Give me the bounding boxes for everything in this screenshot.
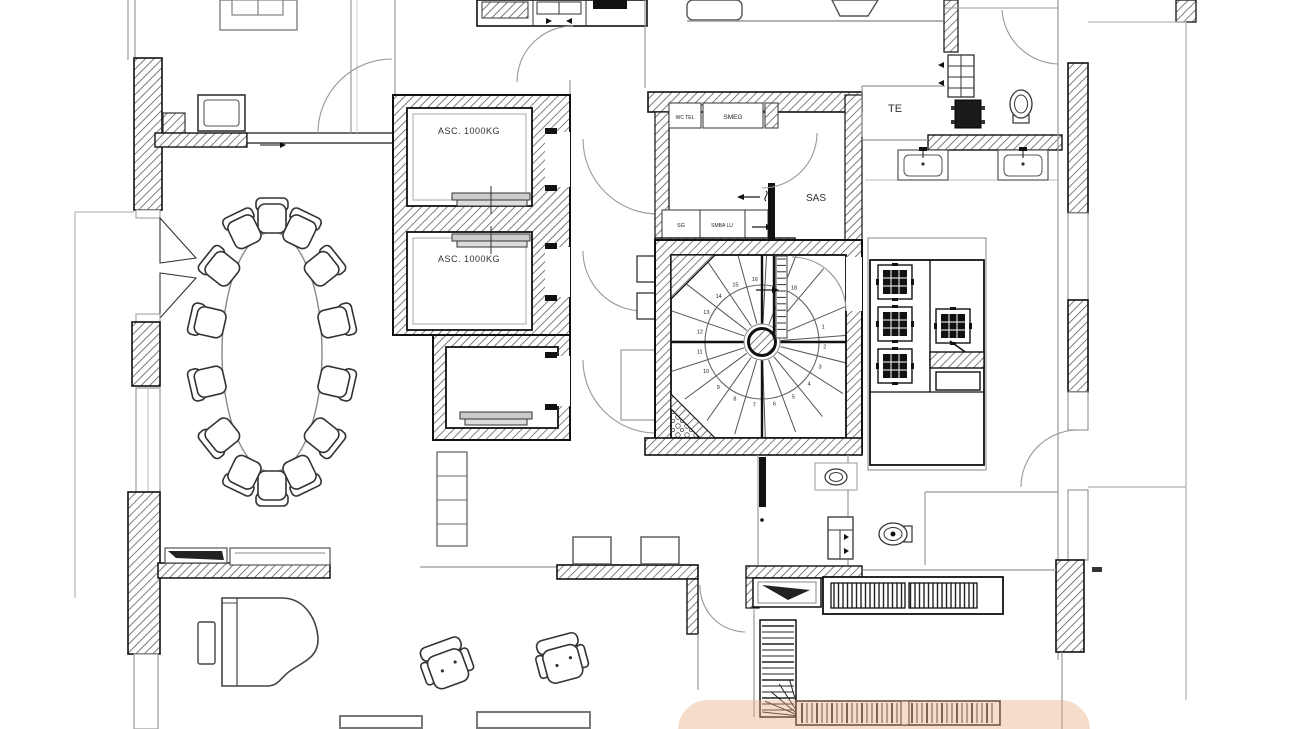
stair-step-number: 4 <box>808 382 811 388</box>
stair-step-number: 11 <box>697 350 703 356</box>
stool <box>641 537 679 564</box>
conference-chair <box>187 363 228 402</box>
door-arc <box>583 251 643 311</box>
sas-vestibule: WC TEL SMEG SAS SG SMBA LU <box>648 92 862 253</box>
cloakroom <box>746 566 1102 614</box>
conference-chair <box>316 363 357 402</box>
shower-unit <box>955 100 981 128</box>
highlight-overlay <box>678 700 1090 729</box>
elevator-cab-1 <box>407 108 532 206</box>
te-label: TE <box>888 103 902 115</box>
piano-bench <box>198 622 215 664</box>
conference-chair <box>187 302 228 341</box>
stair-step-number: 18 <box>791 286 797 292</box>
stair-step-number: 1 <box>822 325 825 331</box>
conference-area <box>187 198 358 506</box>
stair-step-number: 13 <box>703 310 709 316</box>
stove-burner <box>934 307 972 345</box>
low-table <box>340 716 422 728</box>
window <box>1068 490 1088 560</box>
top-right-lounge <box>687 0 943 21</box>
stair-step-number: 5 <box>792 394 795 400</box>
door-arc <box>1002 10 1058 64</box>
door-arc <box>700 585 745 632</box>
conference-chair <box>256 198 288 233</box>
low-table <box>477 712 590 728</box>
sg-label: SG <box>677 223 685 229</box>
floor-plan-canvas: ASC. 1000KG ASC. 1000KG WC TEL SMEG SAS … <box>0 0 1296 729</box>
shelf-stack <box>437 452 467 546</box>
sas-label: SAS <box>806 193 826 204</box>
wall <box>928 135 1062 150</box>
floor-plan-drawing: ASC. 1000KG ASC. 1000KG WC TEL SMEG SAS … <box>0 0 1296 729</box>
bench <box>687 0 742 20</box>
entry-arrow <box>737 194 744 200</box>
toilet <box>1010 90 1032 123</box>
counter-wall <box>687 579 698 634</box>
armchair <box>415 634 477 693</box>
stair-step-number: 15 <box>732 283 738 289</box>
stair-step-number: 8 <box>733 397 736 403</box>
door-arc <box>583 139 658 214</box>
elevator-2-label: ASC. 1000KG <box>438 254 500 264</box>
sanitary-rooms <box>645 438 1058 565</box>
stair-step-number: 16 <box>752 277 758 283</box>
smba-lu-label: SMBA LU <box>711 223 733 229</box>
wc-tel-label: WC TEL <box>676 115 695 121</box>
door-arc <box>318 59 392 133</box>
door-panel <box>768 183 775 239</box>
stove-burner <box>876 263 914 301</box>
exterior-left-wall <box>75 0 196 729</box>
stair-step-number: 9 <box>717 385 720 391</box>
door-arc <box>1021 430 1078 487</box>
chair <box>832 0 878 16</box>
top-left-room <box>155 0 395 148</box>
stair-step-number: 6 <box>773 402 776 408</box>
stair-step-number: 3 <box>818 364 821 370</box>
french-door-leaf <box>160 273 196 318</box>
washbasin <box>998 147 1048 180</box>
coat-rack <box>831 583 905 608</box>
shelf <box>230 548 330 565</box>
counter-wall <box>557 565 698 579</box>
toilet <box>879 523 912 545</box>
drawer <box>936 372 980 390</box>
top-right-rooms: TE <box>862 0 1062 180</box>
wall <box>247 133 393 143</box>
window <box>1068 392 1088 430</box>
coat-rack <box>909 583 977 608</box>
door-arc <box>762 133 817 188</box>
kitchen-block <box>868 238 986 470</box>
music-area <box>158 548 591 728</box>
window <box>1068 213 1088 300</box>
elevator-1-label: ASC. 1000KG <box>438 126 500 136</box>
sink <box>930 352 984 368</box>
stair-step-number: 2 <box>823 345 826 351</box>
conference-chair <box>256 471 288 506</box>
wall <box>645 438 862 455</box>
stair-step-number: 12 <box>697 329 703 335</box>
stair-step-number: 7 <box>753 402 756 408</box>
spiral-staircase: 123456789101112131415161718 <box>655 240 862 453</box>
door-arc <box>517 26 573 82</box>
smeg-label: SMEG <box>723 114 742 121</box>
exterior-right-wall <box>1021 0 1196 729</box>
conference-chair <box>316 302 357 341</box>
stair-column <box>749 329 776 356</box>
washbasin <box>898 147 948 180</box>
elevator-block: ASC. 1000KG ASC. 1000KG <box>393 95 658 440</box>
stool <box>573 537 611 564</box>
wall <box>155 133 247 147</box>
french-door-leaf <box>160 218 196 263</box>
wall <box>845 95 862 240</box>
armchair <box>531 630 591 686</box>
stair-step-number: 14 <box>716 294 722 300</box>
stove-burner <box>876 347 914 385</box>
kitchenette <box>477 0 647 95</box>
cabinet <box>621 350 655 420</box>
door-panel <box>759 457 766 507</box>
stair-step-number: 10 <box>703 369 709 375</box>
stove-burner <box>876 305 914 343</box>
appliance <box>593 0 627 9</box>
